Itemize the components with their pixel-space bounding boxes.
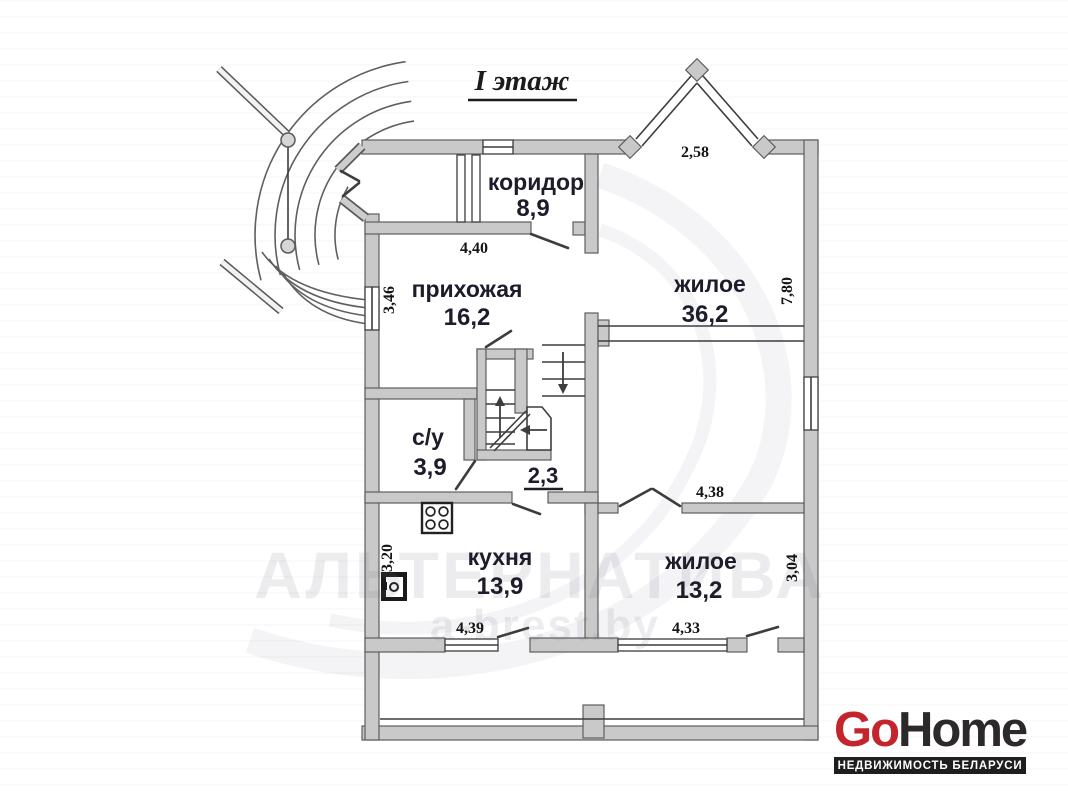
wall-kitchen-top-right <box>548 492 598 503</box>
dim-kitchen-depth: 3,20 <box>379 544 396 572</box>
floor-title: I этаж <box>474 65 570 97</box>
floorplan-page: АЛЬТЕРНАТИВА a-brest.by I этаж коридор 8… <box>0 0 1068 800</box>
dim-living2-width-bottom: 4,33 <box>672 620 700 637</box>
logo-home-text: Home <box>898 703 1026 757</box>
porch-post <box>281 239 295 253</box>
window-top <box>483 140 513 154</box>
room-label-living2: жилое <box>664 548 737 574</box>
porch-post <box>281 133 295 147</box>
room-area-landing: 2,3 <box>528 463 559 488</box>
wall-terrace-top-stub <box>727 638 747 652</box>
wall-corridor-right <box>585 154 598 253</box>
logo-go-text: Go <box>834 703 898 757</box>
partition-post <box>457 155 465 222</box>
room-area-kitchen: 13,9 <box>477 573 524 600</box>
wall-right <box>804 140 818 740</box>
wall-bath-right <box>464 399 475 460</box>
room-label-living1: жилое <box>673 271 746 297</box>
wall-top-mid <box>513 140 630 154</box>
dim-kitchen-width: 4,39 <box>456 620 484 637</box>
dim-living2-width-top: 4,38 <box>696 484 724 501</box>
wall-stairs-right <box>585 313 598 513</box>
room-area-hall: 16,2 <box>444 304 491 331</box>
window-hall-left <box>365 287 379 330</box>
partition-post <box>472 155 480 222</box>
dim-hall-width: 4,40 <box>460 240 488 257</box>
wall-room-divider-stub <box>598 503 618 513</box>
wall-room-divider <box>682 503 804 513</box>
room-label-kitchen: кухня <box>468 544 533 570</box>
stove-icon <box>422 503 452 533</box>
room-area-corridor: 8,9 <box>516 195 549 222</box>
wall-kitchen-top-left <box>365 492 512 503</box>
window-living-right <box>804 377 818 430</box>
porch-railing-bottom <box>222 262 281 311</box>
dim-living1-depth: 7,80 <box>779 277 796 305</box>
dim-bay: 2,58 <box>681 144 709 161</box>
wall-pilaster <box>598 320 609 346</box>
wall-hall-top <box>365 222 531 234</box>
wall-terrace-top-right <box>778 638 804 652</box>
wall-hall-bottom <box>365 388 477 399</box>
terrace-pillar <box>583 705 604 738</box>
dim-living2-depth: 3,04 <box>784 554 801 582</box>
dim-hall-depth: 3,46 <box>381 286 398 314</box>
logo-tagline: НЕДВИЖИМОСТЬ БЕЛАРУСИ <box>834 757 1026 774</box>
room-area-bath: 3,9 <box>413 454 446 481</box>
room-label-bath: с/у <box>412 424 444 450</box>
floorplan-drawing: АЛЬТЕРНАТИВА a-brest.by I этаж коридор 8… <box>0 0 1068 800</box>
room-label-hall: прихожая <box>412 276 523 302</box>
gohome-logo: GoHome НЕДВИЖИМОСТЬ БЕЛАРУСИ <box>834 705 1026 774</box>
room-area-living1: 36,2 <box>682 301 729 328</box>
wall-top-left <box>362 140 483 154</box>
gohome-logo-wordmark: GoHome <box>834 705 1026 755</box>
room-area-living2: 13,2 <box>676 577 723 604</box>
room-label-corridor: коридор <box>488 169 584 195</box>
porch-railing-top <box>219 69 287 134</box>
wall-nub <box>573 222 585 235</box>
stair-landing <box>527 407 551 450</box>
